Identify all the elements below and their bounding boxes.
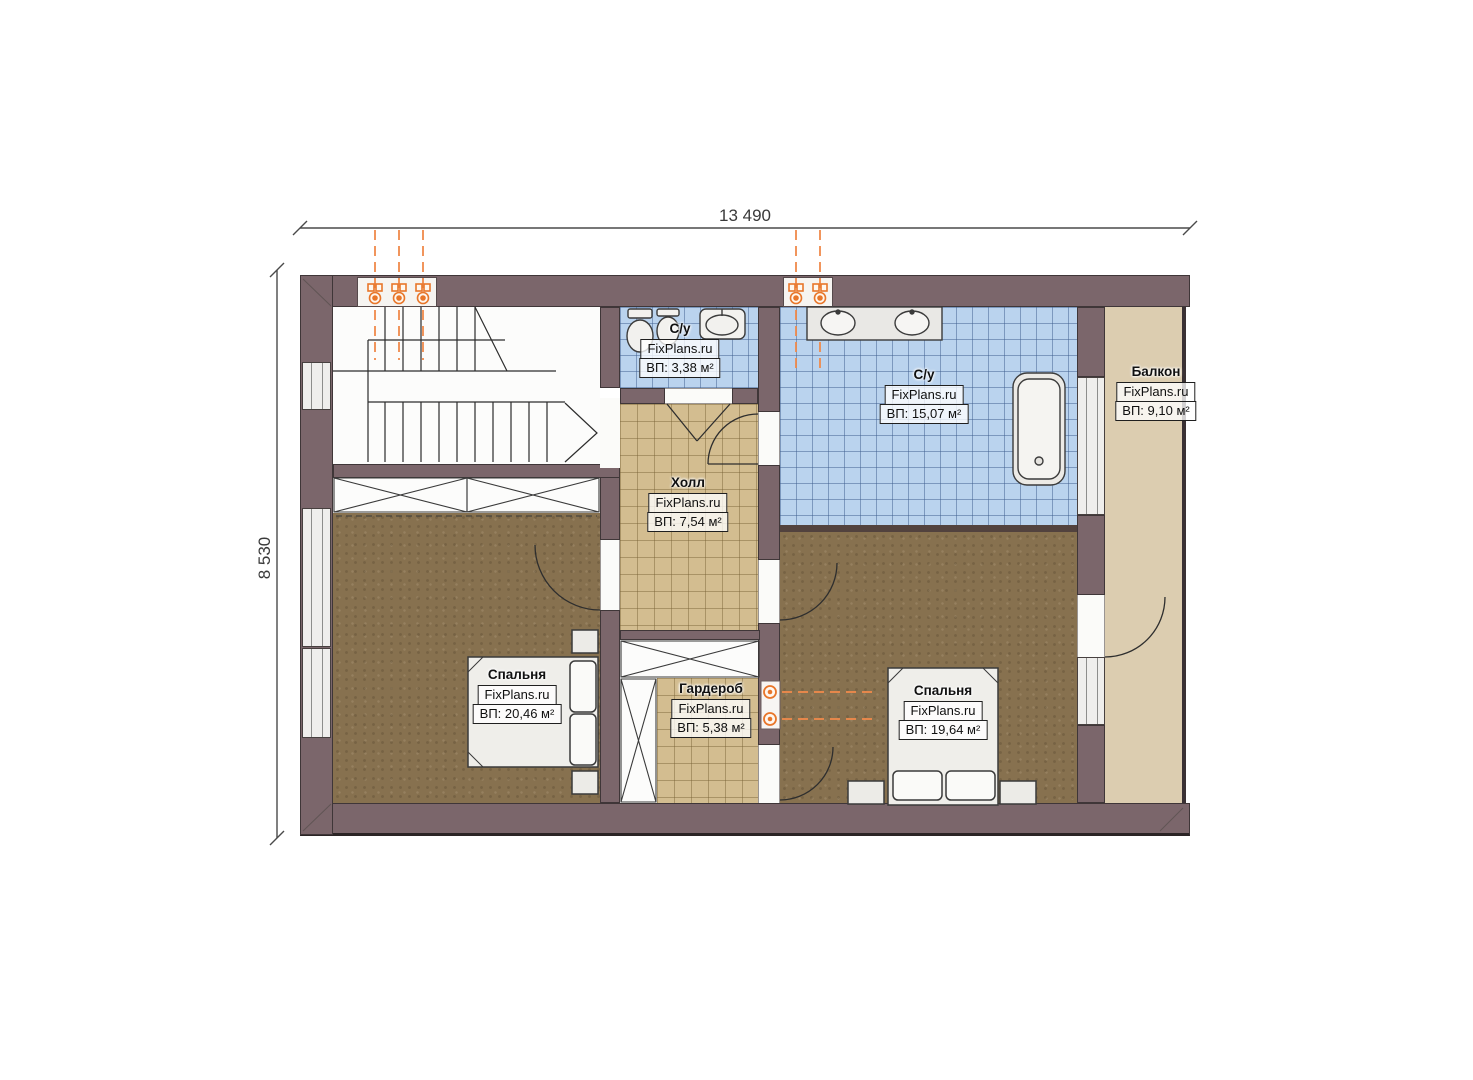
door-opening-balcony — [1077, 595, 1105, 657]
wall-hall-east-c — [758, 623, 780, 745]
room-label-bedroom-right: Спальня FixPlans.ru ВП: 19,64 м² — [899, 683, 988, 740]
wall-mid-a — [600, 307, 620, 388]
staircase-area-floor — [333, 307, 600, 464]
brand-badge: FixPlans.ru — [903, 701, 982, 721]
wall-hall-east-a — [758, 307, 780, 412]
wall-hall-east-b — [758, 465, 780, 560]
room-label-bedroom-left: Спальня FixPlans.ru ВП: 20,46 м² — [473, 667, 562, 724]
dimension-width: 13 490 — [719, 206, 771, 226]
wall-mid-b — [600, 468, 620, 540]
room-name: Гардероб — [679, 681, 743, 696]
wall-hall-south — [620, 630, 760, 640]
closet-row-floor — [333, 478, 600, 513]
partition-bath-bedroom — [780, 525, 1077, 532]
wall-bath-small-south-a — [620, 388, 665, 404]
wall-bottom — [300, 803, 1190, 836]
window-left-upper — [302, 362, 331, 410]
brand-badge: FixPlans.ru — [884, 385, 963, 405]
door-opening-bathroom-main — [758, 412, 780, 465]
window-bedroom-balcony — [1077, 657, 1105, 725]
wall-right-upper — [1077, 307, 1105, 377]
radiator-niche-right — [783, 277, 833, 307]
room-label-bathroom-main: С/у FixPlans.ru ВП: 15,07 м² — [880, 367, 969, 424]
window-bathroom-balcony — [1077, 377, 1105, 515]
dimension-height: 8 530 — [255, 530, 275, 586]
area-badge: ВП: 5,38 м² — [670, 718, 751, 738]
door-opening-wardrobe — [758, 745, 780, 803]
wall-under-stairs — [333, 464, 620, 478]
brand-badge: FixPlans.ru — [640, 339, 719, 359]
room-name: Балкон — [1132, 364, 1181, 379]
room-name: Холл — [671, 475, 705, 490]
room-label-bathroom-small: С/у FixPlans.ru ВП: 3,38 м² — [639, 321, 720, 378]
passage-stairs-hall — [600, 398, 620, 468]
area-badge: ВП: 19,64 м² — [899, 720, 988, 740]
bedroom-right-floor — [780, 532, 1077, 803]
door-opening-bathroom-small — [665, 388, 732, 404]
area-badge: ВП: 20,46 м² — [473, 704, 562, 724]
area-badge: ВП: 7,54 м² — [647, 512, 728, 532]
wall-bath-small-south-b — [732, 388, 758, 404]
radiator-niche-left — [357, 277, 437, 307]
bedroom-left-floor — [333, 513, 600, 803]
room-name: Спальня — [488, 667, 546, 682]
room-label-wardrobe: Гардероб FixPlans.ru ВП: 5,38 м² — [670, 681, 751, 738]
area-badge: ВП: 3,38 м² — [639, 358, 720, 378]
area-badge: ВП: 9,10 м² — [1115, 401, 1196, 421]
window-left-lower — [302, 648, 331, 738]
area-badge: ВП: 15,07 м² — [880, 404, 969, 424]
brand-badge: FixPlans.ru — [671, 699, 750, 719]
room-label-hall: Холл FixPlans.ru ВП: 7,54 м² — [647, 475, 728, 532]
window-left-middle — [302, 508, 331, 647]
brand-badge: FixPlans.ru — [477, 685, 556, 705]
hall-closet-floor — [620, 640, 760, 678]
room-name: С/у — [913, 367, 934, 382]
door-opening-bedroom-left — [600, 540, 620, 610]
door-opening-bedroom-right — [758, 560, 780, 623]
room-label-balcony: Балкон FixPlans.ru ВП: 9,10 м² — [1115, 364, 1196, 421]
room-name: Спальня — [914, 683, 972, 698]
tall-closet-floor — [620, 678, 657, 803]
floor-plan-canvas: 13 490 8 530 С/у FixPlans.ru ВП: 3,38 м²… — [0, 0, 1473, 1080]
wall-mid-c — [600, 610, 620, 803]
wall-right-lower — [1077, 725, 1105, 803]
brand-badge: FixPlans.ru — [648, 493, 727, 513]
wall-right-middle — [1077, 515, 1105, 595]
room-name: С/у — [669, 321, 690, 336]
brand-badge: FixPlans.ru — [1116, 382, 1195, 402]
